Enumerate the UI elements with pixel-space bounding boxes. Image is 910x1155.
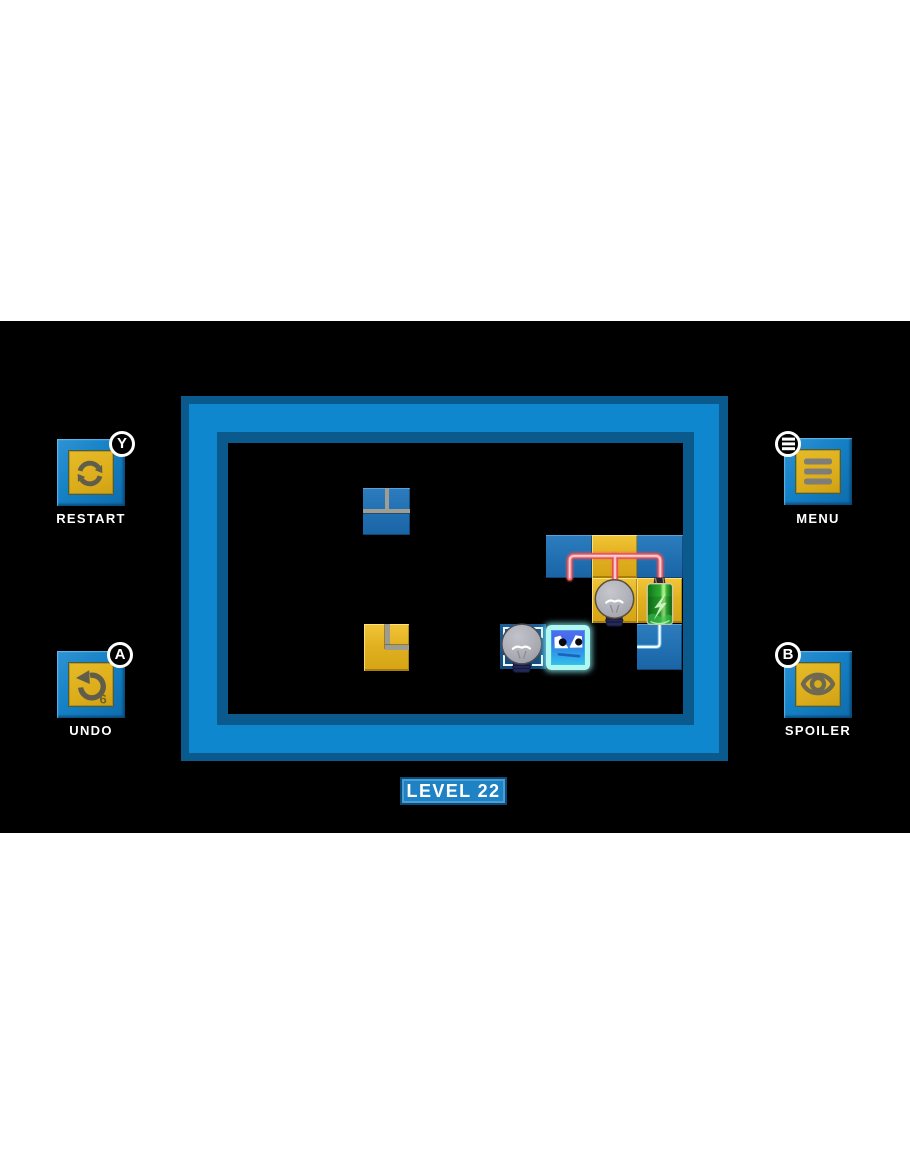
svg-text:6: 6 (100, 692, 107, 706)
